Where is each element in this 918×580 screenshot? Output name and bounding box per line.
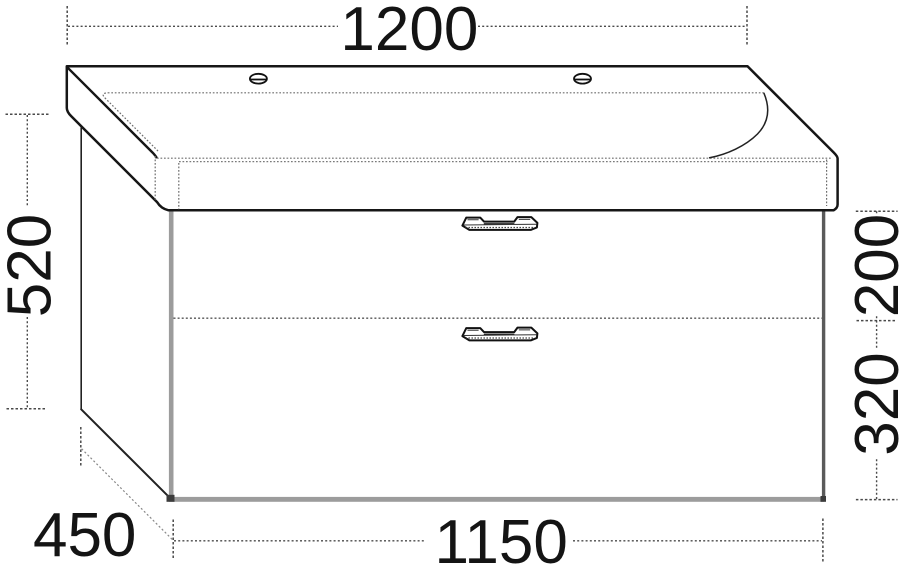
svg-text:520: 520 (0, 214, 65, 317)
svg-text:1200: 1200 (340, 0, 478, 64)
svg-text:200: 200 (843, 214, 912, 317)
svg-text:450: 450 (33, 501, 136, 570)
svg-text:1150: 1150 (435, 508, 568, 577)
svg-text:320: 320 (843, 352, 912, 455)
